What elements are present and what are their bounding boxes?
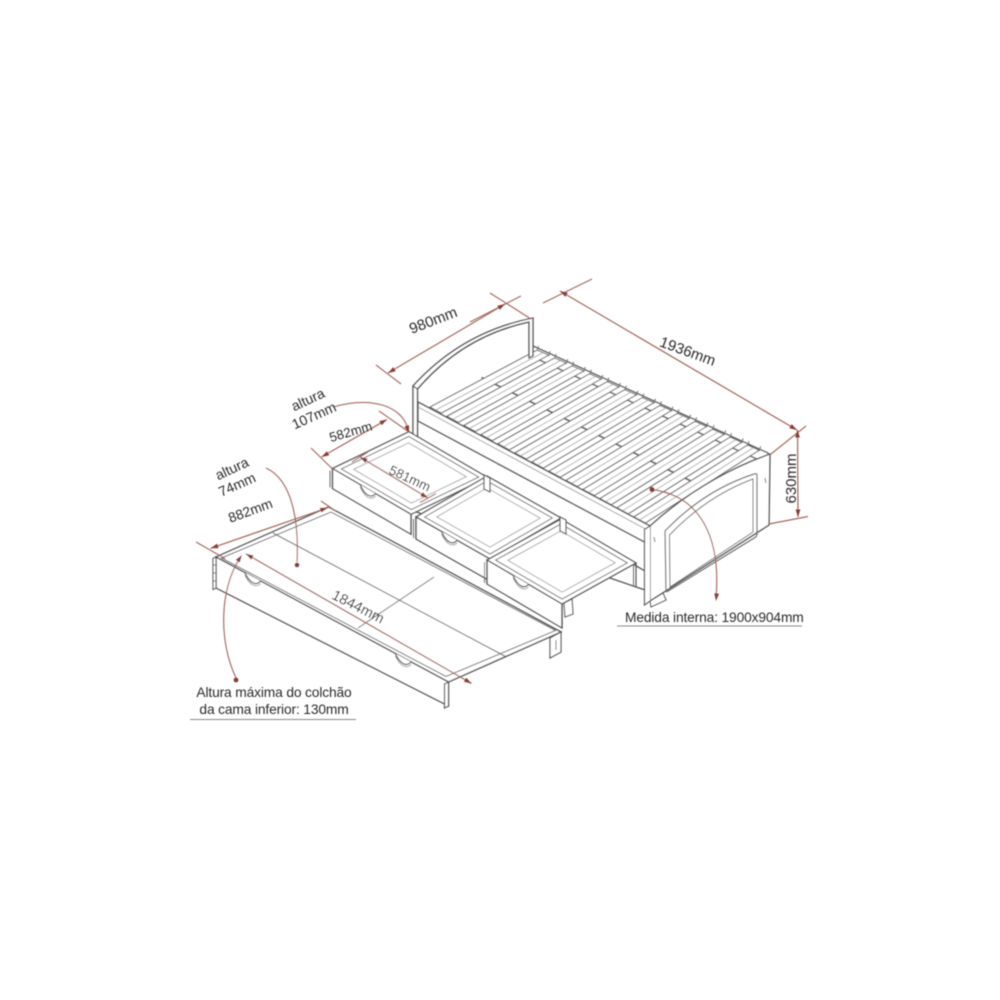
svg-text:630mm: 630mm — [783, 453, 800, 503]
svg-text:da cama inferior: 130mm: da cama inferior: 130mm — [199, 702, 348, 717]
svg-text:Medida interna: 1900x904mm: Medida interna: 1900x904mm — [625, 610, 804, 625]
svg-text:Altura máxima do colchão: Altura máxima do colchão — [196, 685, 352, 700]
